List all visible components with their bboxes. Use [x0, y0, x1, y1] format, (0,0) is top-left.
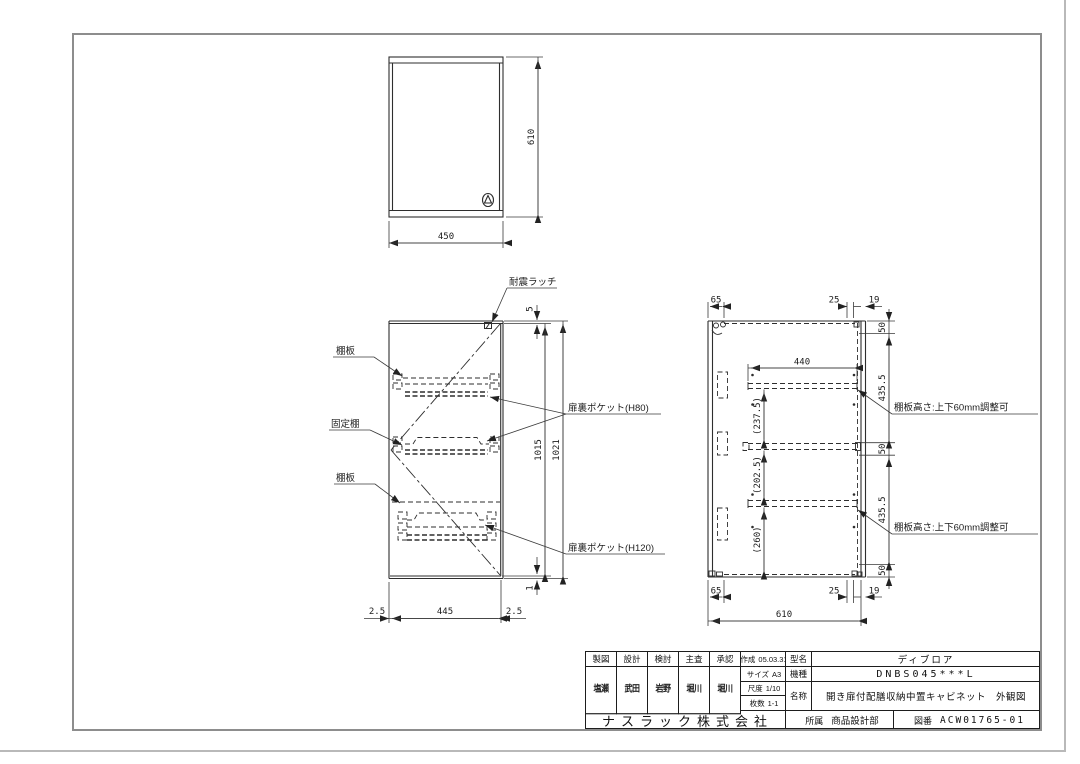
- note-shelf-adjust-upper: 棚板高さ:上下60mm調整可: [894, 402, 1009, 414]
- dim-back-offset-bottom: 65: [711, 587, 722, 597]
- label-seismic-latch: 耐震ラッチ: [509, 276, 557, 288]
- dim-50-mid: 50: [878, 444, 888, 455]
- cad-drawing-canvas: 450 610: [0, 0, 1080, 764]
- dim-space-mid: (202.5): [753, 456, 763, 494]
- front-view-hidden-details: [392, 374, 500, 540]
- dim-space-top: (237.5): [753, 397, 763, 435]
- dim-total-depth: 610: [776, 610, 792, 620]
- dim-left-gap: 2.5: [369, 607, 385, 617]
- sheets-value: 1-1: [768, 699, 779, 708]
- dim-right-gap: 2.5: [506, 607, 522, 617]
- top-view-drawing: [389, 57, 503, 217]
- dim-435-lower: 435.5: [878, 496, 888, 523]
- created-cell: 作成05.03.31: [741, 652, 786, 667]
- company-name: ナスラック株式会社: [586, 711, 786, 729]
- scale-cell: 尺度1/10: [741, 682, 786, 696]
- dim-door-width: 445: [437, 607, 453, 617]
- dim-50-bottom: 50: [878, 565, 888, 576]
- top-view-dimensions: [389, 57, 543, 248]
- department-cell: 所属商品設計部: [786, 711, 894, 729]
- scale-value: 1/10: [766, 684, 781, 693]
- size-value: A3: [772, 670, 781, 679]
- model-label: 型名: [786, 652, 812, 667]
- name-label: 名称: [786, 682, 812, 711]
- model-value: ディブロア: [812, 652, 1040, 667]
- stamp-chief: 堀川: [679, 664, 710, 715]
- dim-door-thickness-top: 19: [869, 296, 880, 306]
- size-label: サイズ: [747, 669, 769, 680]
- shelf-pin-dots: [751, 374, 855, 529]
- series-label: 機種: [786, 667, 812, 682]
- name-value: 開き扉付配膳収納中置キャビネット 外観図: [812, 682, 1040, 711]
- dim-shelf-depth: 440: [794, 358, 810, 368]
- side-view-small-details: [709, 322, 862, 576]
- stamp-drafting: 塩瀬: [586, 664, 617, 715]
- dim-top-gap: 5: [526, 306, 536, 311]
- note-shelf-adjust-lower: 棚板高さ:上下60mm調整可: [894, 522, 1009, 534]
- label-fixed-shelf: 固定棚: [331, 418, 360, 430]
- label-shelf-board-upper: 棚板: [336, 345, 356, 357]
- drawing-number-value: ACW01765-01: [940, 715, 1025, 726]
- stamp-approval: 堀川: [710, 664, 741, 715]
- sheets-cell: 枚数1-1: [741, 696, 786, 711]
- side-view-hidden-lines: [718, 323, 858, 575]
- size-cell: サイズA3: [741, 667, 786, 682]
- dim-total-height: 1021: [552, 439, 562, 461]
- stamp-design: 武田: [617, 664, 648, 715]
- created-date: 05.03.31: [758, 655, 786, 664]
- sheets-label: 枚数: [750, 698, 765, 709]
- label-door-pocket-h120: 扉裏ポケット(H120): [568, 542, 654, 554]
- series-value: DNBS045***L: [812, 667, 1040, 682]
- latch-symbol-top-view: [483, 194, 494, 207]
- title-block: 製図 設計 検討 主査 承認 作成05.03.31 塩瀬 武田 岩野 堀川 堀川…: [585, 651, 1040, 729]
- created-label: 作成: [741, 654, 755, 665]
- dim-top-width: 450: [438, 232, 454, 242]
- side-view-drawing: [708, 321, 866, 577]
- front-view-dimensions: [364, 305, 568, 623]
- dim-bottom-gap: 1: [526, 585, 536, 590]
- dim-back-offset-top: 65: [711, 296, 722, 306]
- dim-door-thickness-bottom: 19: [869, 587, 880, 597]
- dim-front-offset-bottom: 25: [829, 587, 840, 597]
- dim-space-bottom: (260): [753, 526, 763, 553]
- dim-front-offset-top: 25: [829, 296, 840, 306]
- drawing-number-cell: 図番ACW01765-01: [894, 711, 1040, 729]
- dim-door-height: 1015: [534, 439, 544, 461]
- dim-50-top: 50: [878, 322, 888, 333]
- stamp-review: 岩野: [648, 664, 679, 715]
- dim-435-upper: 435.5: [878, 374, 888, 401]
- department-value: 商品設計部: [831, 713, 879, 727]
- scale-label: 尺度: [748, 683, 763, 694]
- dim-top-depth: 610: [527, 129, 537, 145]
- drawing-number-label: 図番: [914, 714, 932, 727]
- department-label: 所属: [805, 714, 823, 727]
- label-shelf-board-lower: 棚板: [336, 472, 356, 484]
- label-door-pocket-h80: 扉裏ポケット(H80): [568, 402, 649, 414]
